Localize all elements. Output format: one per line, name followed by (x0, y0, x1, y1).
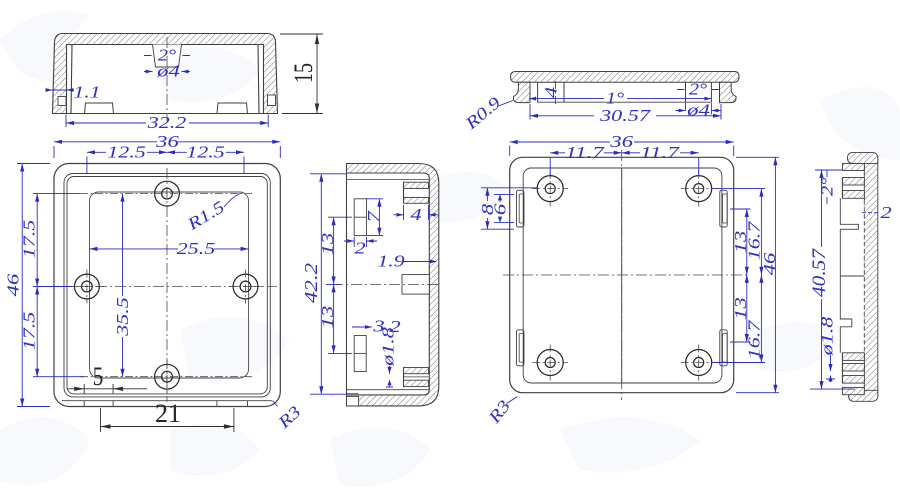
svg-text:13: 13 (318, 233, 337, 256)
svg-text:42.2: 42.2 (301, 263, 321, 303)
svg-text:36: 36 (609, 132, 634, 151)
svg-text:35.5: 35.5 (113, 297, 132, 337)
svg-text:4: 4 (542, 86, 561, 98)
svg-text:17.5: 17.5 (20, 220, 39, 259)
svg-text:25.5: 25.5 (177, 239, 216, 258)
svg-text:ø4: ø4 (156, 62, 181, 81)
svg-text:2: 2 (880, 203, 892, 222)
svg-text:21: 21 (155, 399, 181, 428)
svg-text:36: 36 (155, 132, 180, 151)
svg-text:30.57: 30.57 (599, 106, 652, 125)
svg-text:13: 13 (731, 297, 750, 320)
svg-text:46: 46 (760, 252, 779, 275)
svg-text:6: 6 (491, 203, 510, 215)
svg-text:11.7: 11.7 (640, 143, 681, 162)
svg-text:5: 5 (93, 362, 104, 391)
svg-text:2°: 2° (689, 80, 708, 99)
svg-text:2: 2 (354, 239, 366, 258)
svg-text:13: 13 (318, 306, 337, 329)
svg-text:46: 46 (4, 273, 23, 296)
svg-text:1°: 1° (606, 89, 625, 108)
svg-text:16.7: 16.7 (745, 319, 764, 359)
svg-text:15: 15 (289, 63, 318, 83)
svg-text:1.1: 1.1 (73, 83, 100, 102)
svg-text:ø4: ø4 (686, 101, 711, 120)
svg-text:2°: 2° (818, 177, 837, 196)
svg-text:17.5: 17.5 (20, 312, 39, 351)
svg-text:12.5: 12.5 (186, 142, 225, 161)
svg-text:11.7: 11.7 (565, 143, 606, 162)
svg-text:32.2: 32.2 (146, 113, 186, 132)
svg-text:7: 7 (364, 209, 383, 222)
svg-text:ø1.8: ø1.8 (818, 316, 837, 357)
svg-text:40.57: 40.57 (809, 247, 830, 297)
svg-text:4: 4 (410, 205, 422, 224)
svg-text:1.9: 1.9 (377, 252, 405, 271)
svg-text:12.5: 12.5 (107, 142, 146, 161)
svg-text:ø1.8: ø1.8 (379, 326, 398, 367)
